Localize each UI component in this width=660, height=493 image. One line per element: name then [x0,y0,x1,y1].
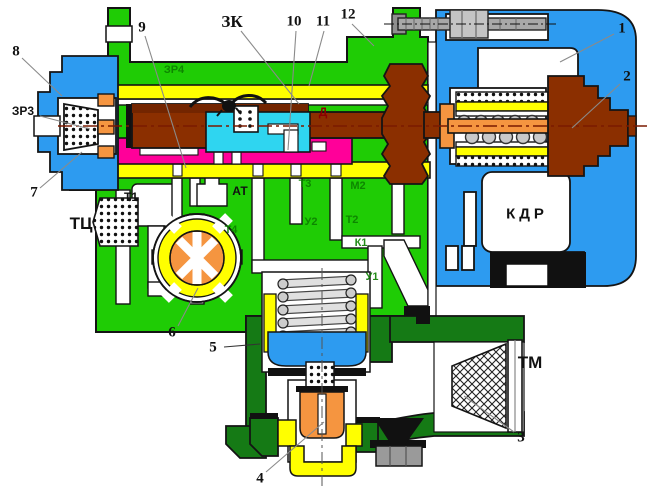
kdr-mount [490,252,586,288]
coil-spring [278,275,356,341]
tc-filter [93,198,138,246]
air-distributor-diagram [0,0,660,493]
diagram-stage: 89ЗК10111212ЗР3ЗР47ТЦТ1АТДТ3М2У2Т2Т4К1У1… [0,0,660,493]
left-cap [34,56,118,190]
piston-disc [382,64,430,184]
tm-filter [434,340,524,432]
cyan-chamber [206,106,310,152]
